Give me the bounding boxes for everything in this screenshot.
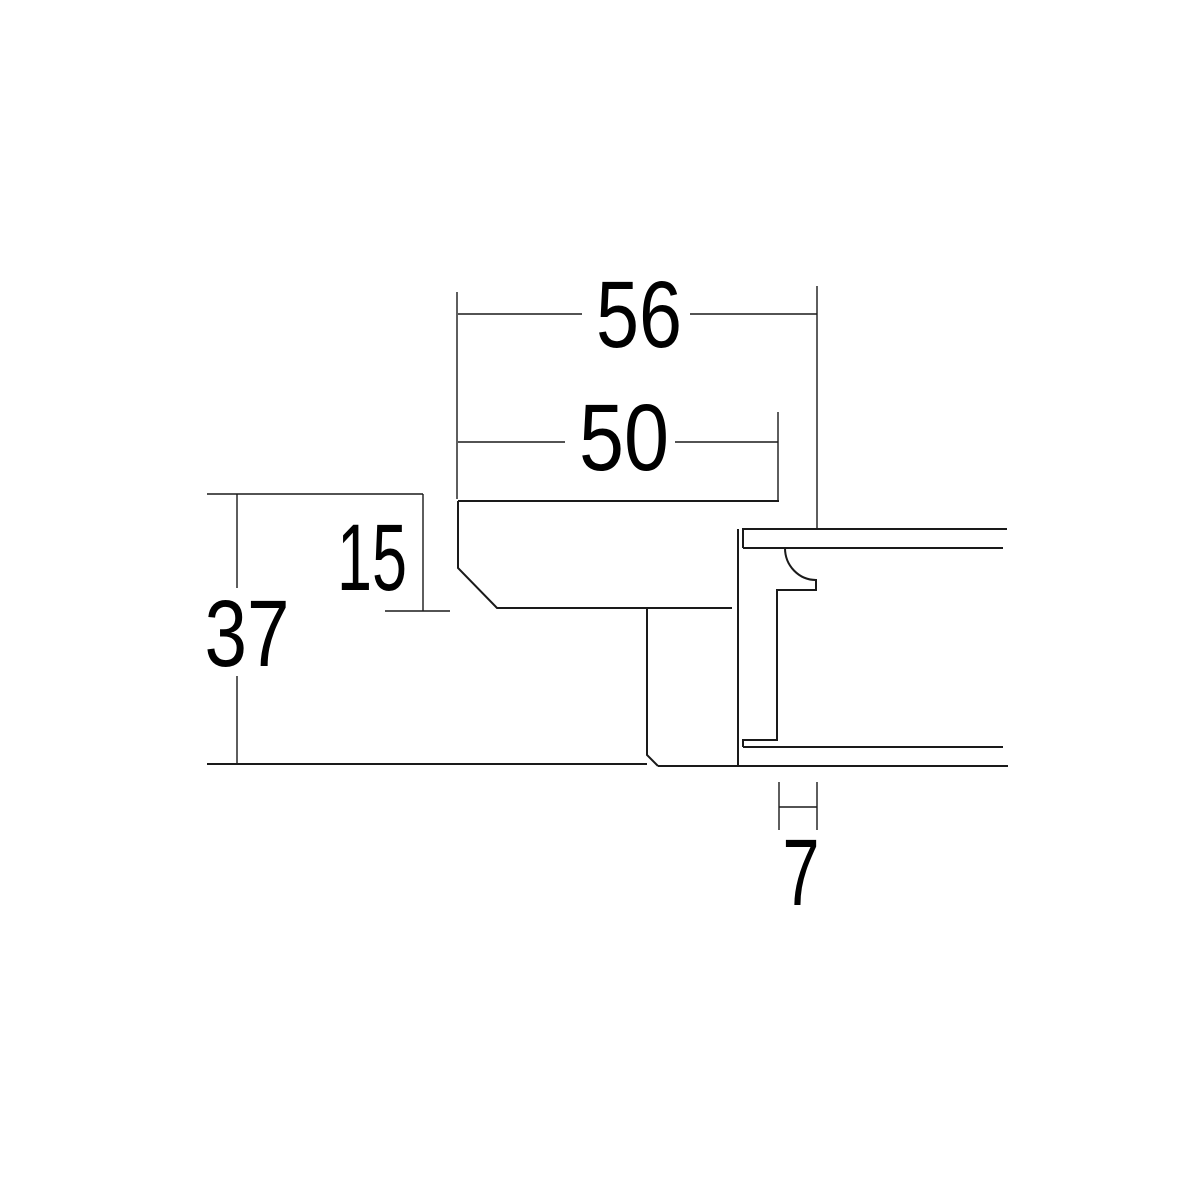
- left-profile-lower-leg: [647, 609, 658, 766]
- dimension-50-label: 50: [579, 385, 669, 491]
- dimension-37-label: 37: [205, 581, 290, 687]
- dimension-7-label: 7: [783, 820, 820, 926]
- left-profile-side-chamfer-lip: [458, 501, 732, 608]
- technical-section-drawing: 56 50 15 37 7: [0, 0, 1200, 1200]
- dimension-lines: [207, 286, 817, 830]
- right-profile-top-band: [743, 529, 1007, 548]
- dimension-labels: 56 50 15 37 7: [205, 262, 820, 926]
- drawing-canvas: 56 50 15 37 7: [0, 0, 1200, 1200]
- profile-outlines: [207, 501, 1008, 766]
- dimension-56-label: 56: [596, 262, 682, 368]
- right-profile-cove-step: [743, 548, 816, 747]
- dimension-15-label: 15: [337, 505, 407, 611]
